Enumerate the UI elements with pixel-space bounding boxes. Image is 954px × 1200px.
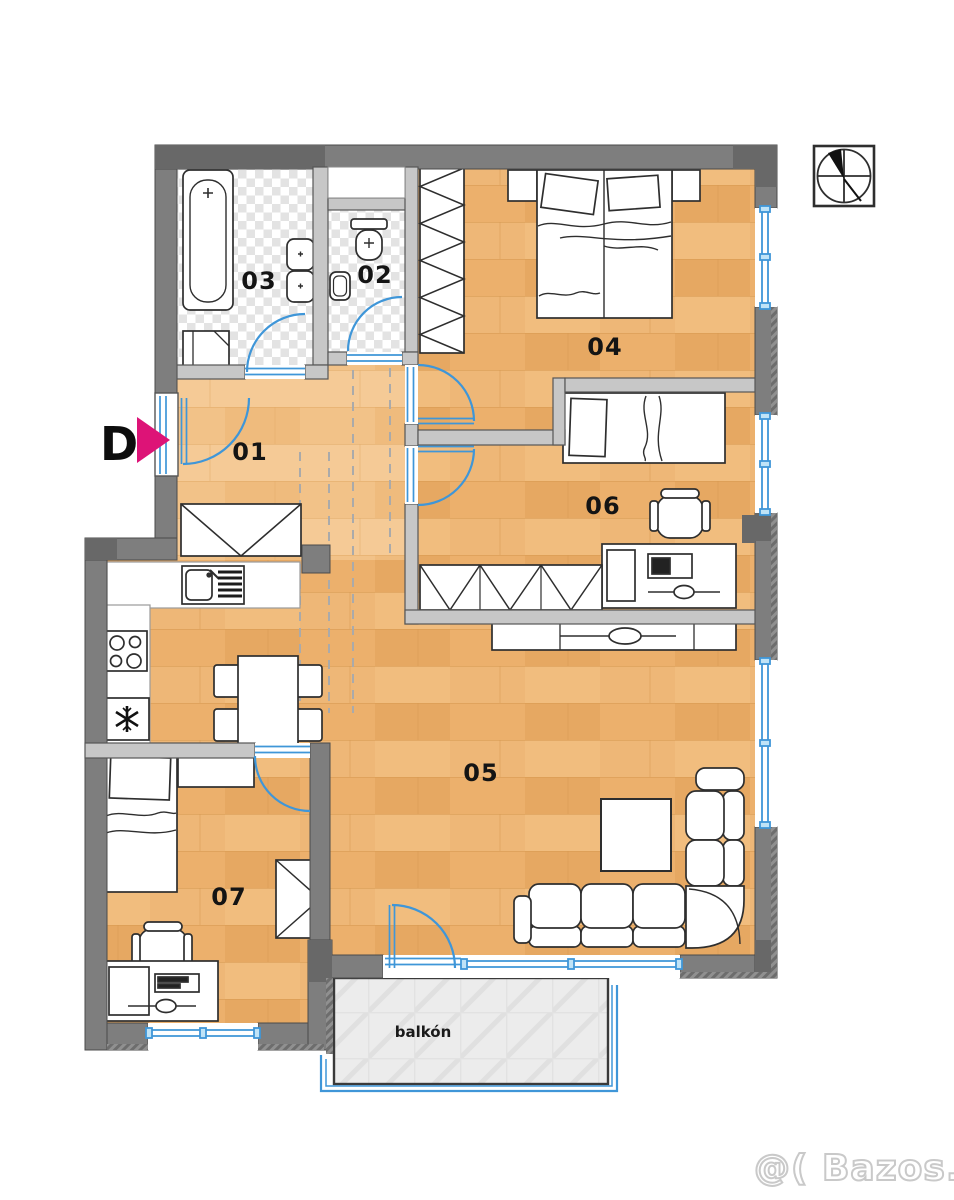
- stove: [105, 631, 147, 671]
- room-label-04: 04: [587, 333, 622, 361]
- bathtub: [183, 170, 233, 310]
- room-label-01: 01: [232, 438, 267, 466]
- kitchen-sink: [182, 566, 244, 604]
- single-bed-07: [105, 752, 177, 892]
- nightstand-right: [672, 170, 700, 201]
- watermark: @( Bazos.sk: [754, 1148, 954, 1189]
- bedroom04-wardrobe: [420, 168, 464, 353]
- desk-07: [104, 961, 218, 1021]
- balcony-label: balkón: [395, 1023, 452, 1041]
- entrance-letter: D: [100, 417, 138, 471]
- room-label-06: 06: [585, 492, 620, 520]
- wardrobe-06: [420, 565, 602, 610]
- coffee-table: [601, 799, 671, 871]
- desk-06: [602, 544, 736, 608]
- utility-shaft: [328, 167, 405, 198]
- floor-plan-drawing: 01 02 03 04 05 06 07 balkón D @( Bazos.s…: [0, 0, 954, 1200]
- nightstand-left: [508, 170, 537, 201]
- compass-icon: [814, 146, 874, 206]
- floor-plan-page: 01 02 03 04 05 06 07 balkón D @( Bazos.s…: [0, 0, 954, 1200]
- room-label-03: 03: [241, 267, 276, 295]
- tv-sideboard: [492, 621, 736, 650]
- double-bed: [537, 170, 672, 318]
- hall-wardrobe: [181, 504, 301, 556]
- single-bed-06: [563, 393, 725, 463]
- small-sink: [330, 272, 350, 300]
- room-label-02: 02: [357, 261, 392, 289]
- floor-balcony: [334, 978, 608, 1084]
- toilet-bowl: [351, 219, 387, 260]
- fridge: [105, 698, 149, 740]
- room-label-05: 05: [463, 759, 498, 787]
- room-label-07: 07: [211, 883, 246, 911]
